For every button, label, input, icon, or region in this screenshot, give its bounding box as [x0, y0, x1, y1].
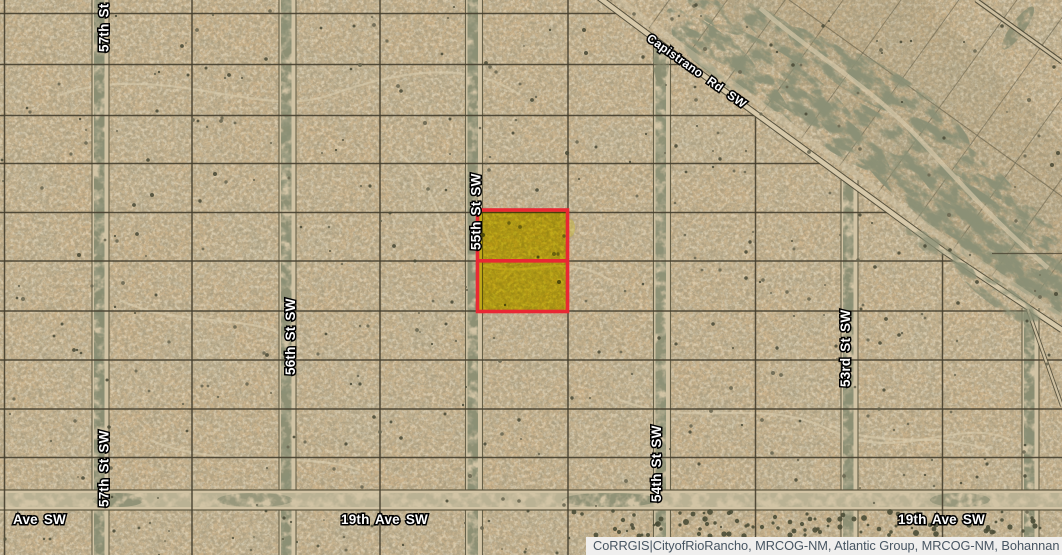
svg-text:Ave SW: Ave SW [13, 512, 66, 527]
svg-text:19th Ave SW: 19th Ave SW [341, 512, 428, 527]
svg-text:56th St SW: 56th St SW [283, 298, 298, 375]
svg-text:19th Ave SW: 19th Ave SW [898, 512, 985, 527]
svg-text:57th St SW: 57th St SW [97, 0, 112, 52]
svg-text:54th St SW: 54th St SW [649, 425, 664, 502]
svg-text:55th St SW: 55th St SW [469, 173, 484, 250]
svg-text:57th St SW: 57th St SW [97, 430, 112, 507]
svg-text:53rd St SW: 53rd St SW [838, 310, 853, 387]
